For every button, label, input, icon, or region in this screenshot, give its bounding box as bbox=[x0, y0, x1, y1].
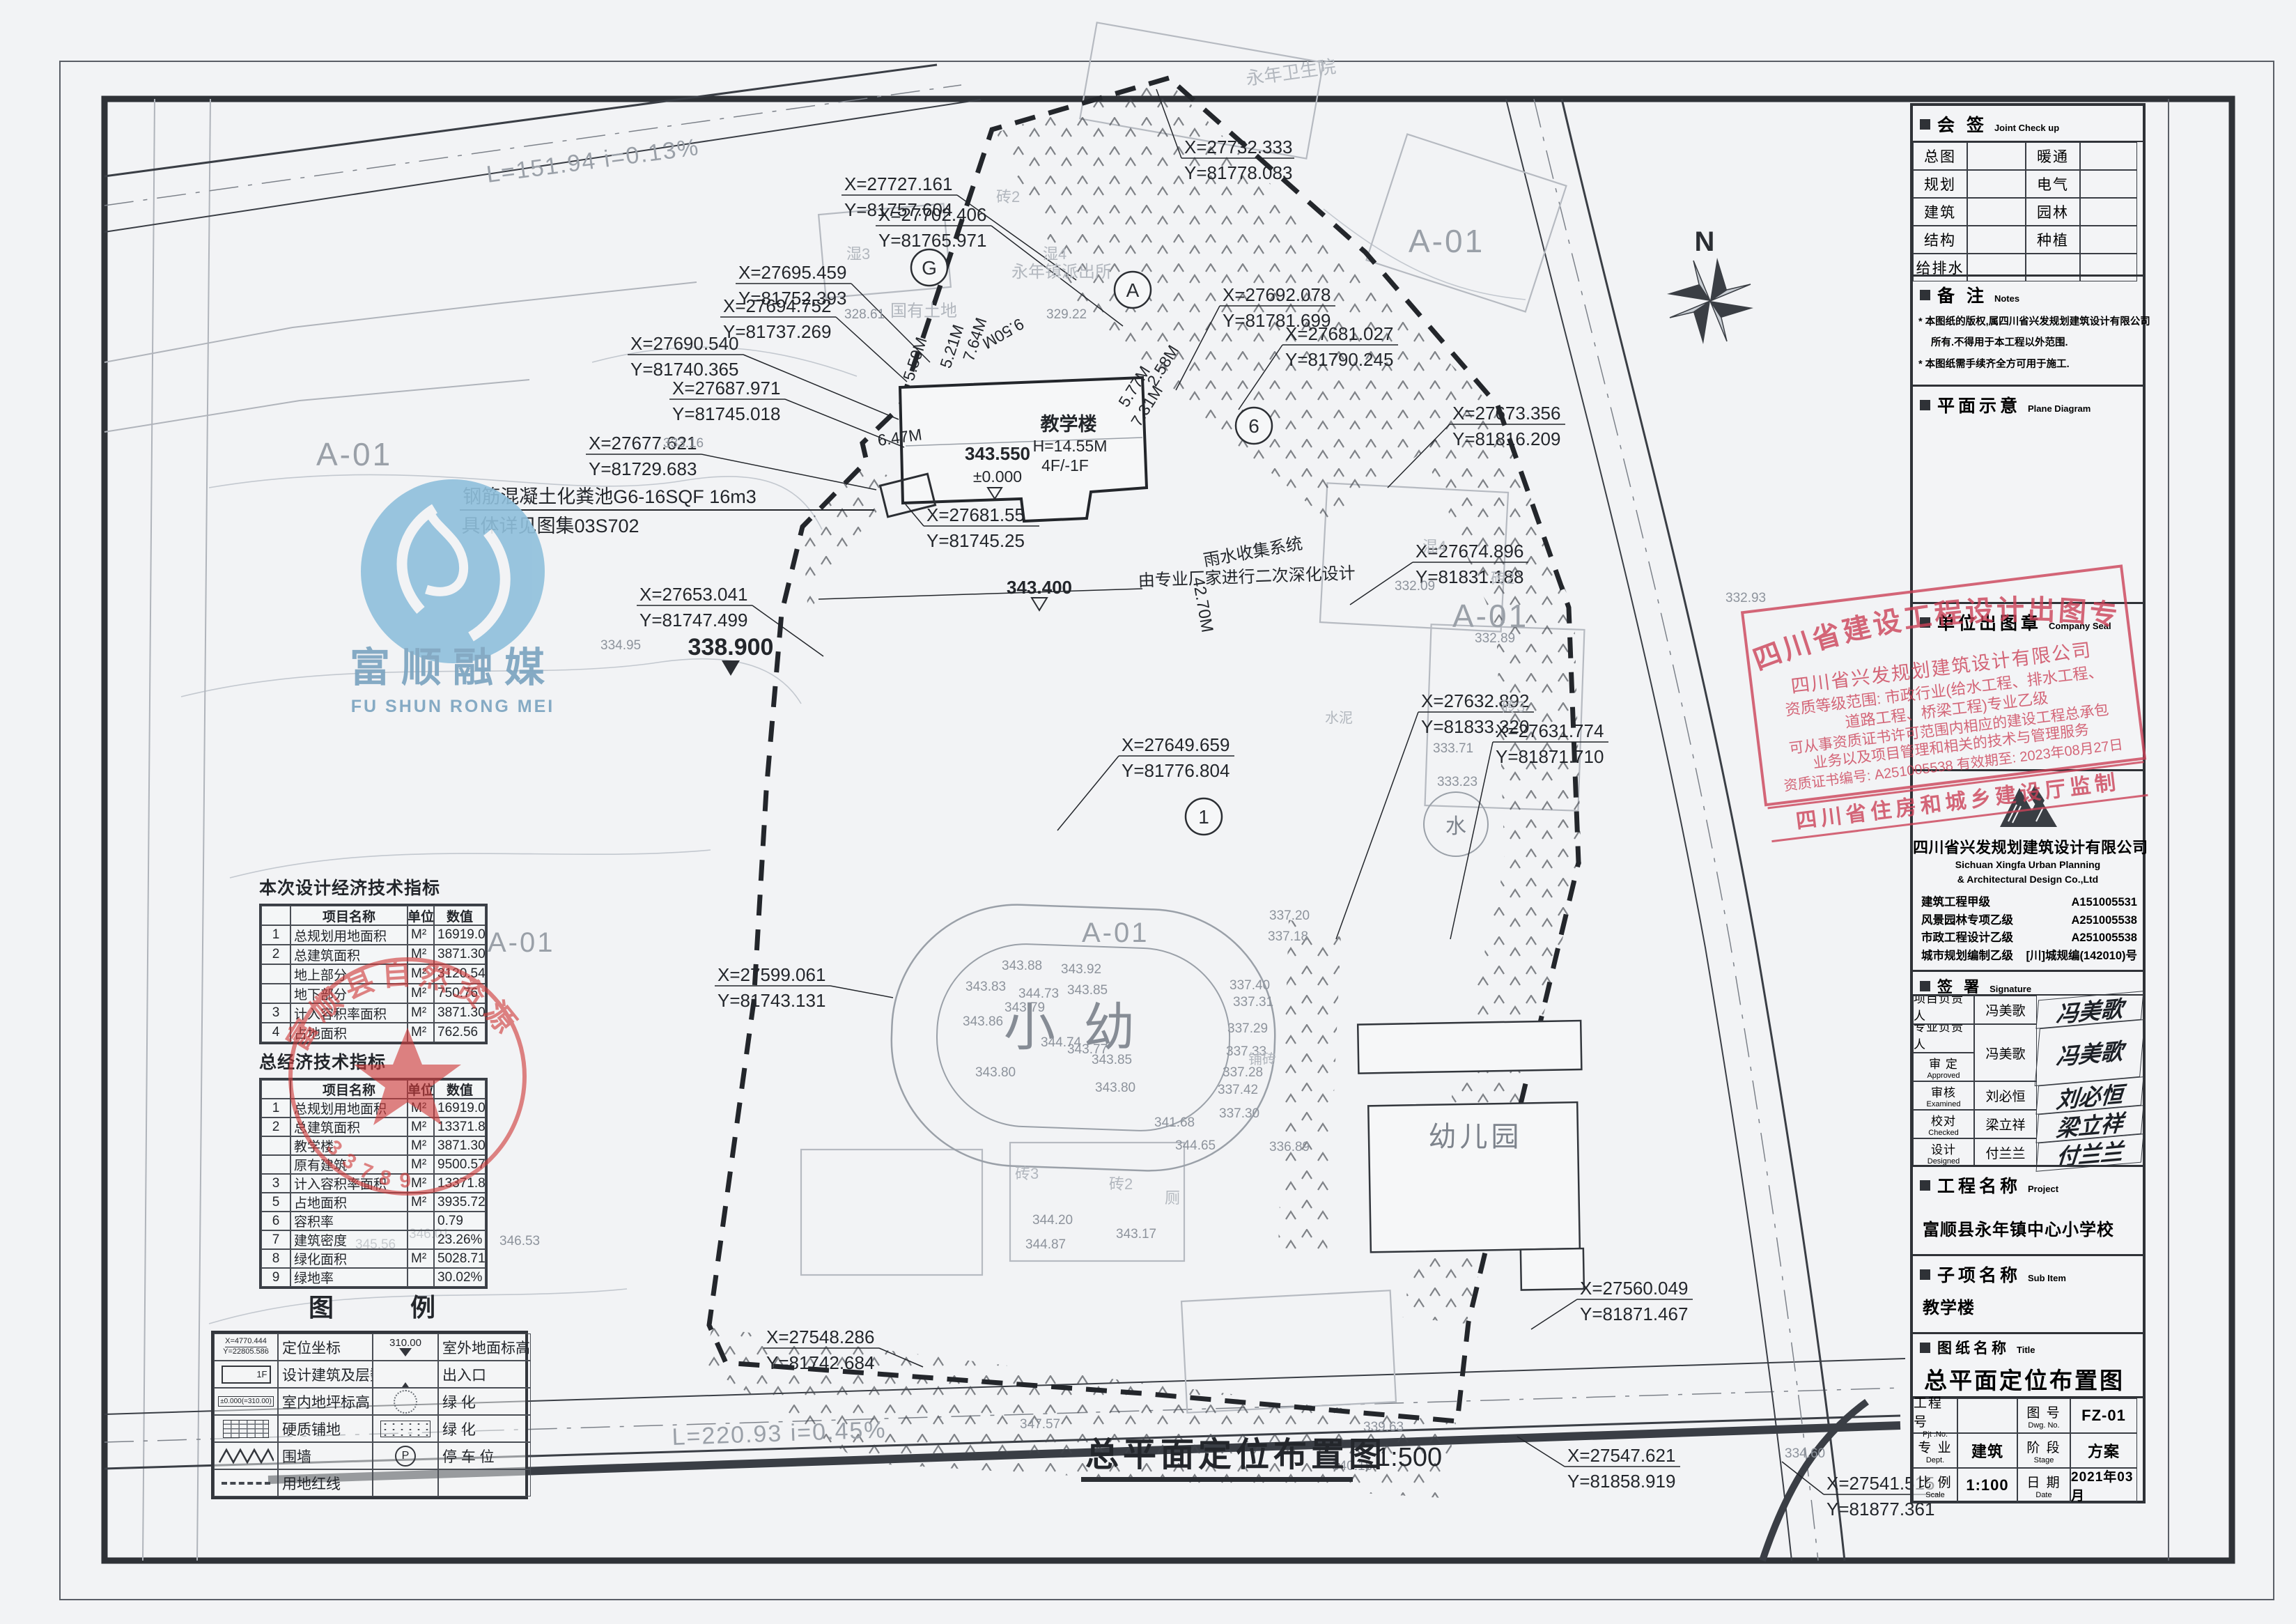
td: 7 bbox=[261, 1230, 290, 1249]
caption-scale: 1:500 bbox=[1376, 1443, 1442, 1472]
coordinate-callouts: X=27732.333 Y=81778.083 X=27727.161 Y=81… bbox=[586, 89, 1939, 1519]
td: 6 bbox=[261, 1212, 290, 1230]
td: 3871.30 bbox=[434, 1003, 486, 1023]
section-title: 单位出图章 bbox=[1937, 610, 2042, 635]
spot-elevation: 337.40 bbox=[1230, 978, 1270, 993]
section-title: 图纸名称 bbox=[1937, 1337, 2010, 1358]
coord-x: X=27681.55 bbox=[926, 504, 1025, 525]
coord-y: Y=81737.269 bbox=[723, 321, 831, 342]
td: 750.76 bbox=[434, 984, 486, 1003]
td: 3 bbox=[261, 1174, 290, 1193]
section-title-en: Project bbox=[2028, 1184, 2058, 1194]
sheet-name-section: 图纸名称 Title 总平面定位布置图 bbox=[1913, 1332, 2143, 1398]
td bbox=[408, 1268, 434, 1287]
coord-callout: X=27677.621 Y=81729.683 bbox=[586, 433, 876, 490]
coord-x: X=27727.161 bbox=[844, 173, 952, 194]
td: 9 bbox=[261, 1268, 290, 1287]
spot-elevation: 328.61 bbox=[844, 307, 885, 322]
role-label: 设计 bbox=[1931, 1140, 1956, 1157]
indoor-level-symbol: ±0.000(=310.00) bbox=[218, 1396, 274, 1407]
td: 占地面积 bbox=[290, 1023, 408, 1042]
coord-y: Y=81816.209 bbox=[1452, 428, 1560, 449]
building-height: H=14.55M bbox=[1033, 437, 1108, 455]
bubble-label: 6 bbox=[1248, 415, 1259, 437]
tree-icon bbox=[394, 1390, 417, 1414]
spot-elevation: 337.28 bbox=[1223, 1065, 1263, 1080]
td: 1 bbox=[261, 1099, 290, 1118]
td: 762.56 bbox=[434, 1023, 486, 1042]
field-label: 图 号 bbox=[2026, 1402, 2061, 1421]
spot-elevation: 337.20 bbox=[1269, 908, 1310, 923]
discipline-label: 总图 bbox=[1913, 142, 1967, 170]
role-label: 审核 bbox=[1931, 1083, 1956, 1100]
td: 总建筑面积 bbox=[290, 1118, 408, 1136]
section-title-en: Signature bbox=[1989, 984, 2031, 994]
td: 绿地率 bbox=[290, 1268, 408, 1287]
spot-elevation: 347.57 bbox=[1020, 1417, 1060, 1432]
company-logo bbox=[1993, 780, 2063, 830]
building-symbol: 1F bbox=[222, 1366, 271, 1384]
legend-label: 绿 化 bbox=[438, 1415, 531, 1442]
td: M² bbox=[408, 1023, 434, 1042]
td: M² bbox=[408, 1174, 434, 1193]
kindergarten-label: 幼儿园 bbox=[1429, 1122, 1523, 1152]
pond: 水 333.23 bbox=[1424, 775, 1488, 856]
cert-label: 城市规划编制乙级 bbox=[1921, 948, 2013, 966]
th: 数值 bbox=[434, 1080, 486, 1099]
td: 4 bbox=[261, 1023, 290, 1042]
spot-elevation: 337.29 bbox=[1227, 1021, 1268, 1036]
td bbox=[408, 1230, 434, 1249]
field-label: 比 例 bbox=[1918, 1472, 1952, 1491]
td: 地上部分 bbox=[290, 964, 408, 984]
design-indicator-table: 本次设计经济技术指标 项目名称 单位 数值 1总规划用地面积M²16919.03… bbox=[259, 874, 488, 1044]
table-title: 本次设计经济技术指标 bbox=[259, 874, 488, 899]
section-title-en: Plane Diagram bbox=[2028, 403, 2091, 414]
parcel-label: A-01 bbox=[1452, 598, 1528, 634]
bg-label: 铺砖 bbox=[1248, 1051, 1276, 1067]
td: 16919.03 bbox=[434, 1099, 486, 1118]
discipline-label: 规划 bbox=[1913, 170, 1967, 198]
th: 项目名称 bbox=[290, 1080, 408, 1099]
td: 占地面积 bbox=[290, 1193, 408, 1212]
spot-elevation: 337.18 bbox=[1268, 929, 1308, 944]
parcel-label: A-01 bbox=[1082, 918, 1149, 948]
td: 8 bbox=[261, 1249, 290, 1268]
legend-label: 定位坐标 bbox=[278, 1333, 373, 1361]
bg-label: 混4 bbox=[1422, 538, 1446, 555]
coord-x: X=27694.752 bbox=[723, 295, 831, 316]
section-title-en: Notes bbox=[1994, 293, 2019, 304]
signer-name: 冯美歌 bbox=[1974, 1024, 2037, 1081]
section-square-icon bbox=[1920, 981, 1930, 991]
td: 绿化面积 bbox=[290, 1249, 408, 1268]
spot-elevation: 343.88 bbox=[1002, 959, 1042, 973]
coord-x: X=27690.540 bbox=[630, 333, 738, 354]
legend-label: 用地红线 bbox=[278, 1469, 373, 1497]
th: 数值 bbox=[434, 906, 486, 925]
td: 2 bbox=[261, 945, 290, 964]
spot-elevation: 333.23 bbox=[1437, 775, 1477, 789]
bg-label: 砖2 bbox=[996, 188, 1020, 206]
coord-callout: X=27681.55 Y=81745.25 bbox=[906, 504, 1039, 551]
role-label: 专业负责人 bbox=[1914, 1024, 1973, 1052]
td bbox=[408, 1212, 434, 1230]
note-line: 所有.不得用于本工程以外范围. bbox=[1913, 332, 2143, 353]
th: 项目名称 bbox=[290, 906, 408, 925]
td: 总建筑面积 bbox=[290, 945, 408, 964]
coord-y: Y=81743.131 bbox=[717, 990, 825, 1011]
coord-y: Y=81747.499 bbox=[639, 610, 747, 631]
sub-item-name: 教学楼 bbox=[1913, 1287, 2143, 1318]
td: M² bbox=[408, 945, 434, 964]
north-compass-icon bbox=[1667, 258, 1753, 344]
section-title-en: Title bbox=[2017, 1345, 2035, 1355]
section-title: 平面示意 bbox=[1937, 392, 2021, 417]
section-title: 工程名称 bbox=[1937, 1173, 2021, 1198]
field-label: 工程号 bbox=[1914, 1393, 1957, 1430]
project-name: 富顺县永年镇中心小学校 bbox=[1913, 1198, 2143, 1240]
section-square-icon bbox=[1920, 290, 1930, 300]
sub-item-section: 子项名称 Sub Item 教学楼 bbox=[1913, 1254, 2143, 1334]
coord-y: Y=81742.684 bbox=[766, 1352, 874, 1373]
spot-elevation: 337.30 bbox=[1219, 1106, 1259, 1121]
bg-label: 砖2 bbox=[1109, 1175, 1133, 1193]
td: 16919.03 bbox=[434, 925, 486, 945]
spot-elevation: 343.83 bbox=[965, 980, 1006, 994]
td: 计入容积率面积 bbox=[290, 1174, 408, 1193]
coord-y: Y=81858.919 bbox=[1567, 1471, 1675, 1492]
bg-label: 湿3 bbox=[846, 245, 870, 263]
discipline-label: 暖通 bbox=[2026, 142, 2080, 170]
company-name: 四川省兴发规划建筑设计有限公司 bbox=[1913, 835, 2143, 858]
bg-label-police: 永年镇派出所 bbox=[1011, 263, 1112, 281]
section-square-icon bbox=[1920, 400, 1930, 410]
greenery-symbol bbox=[380, 1421, 430, 1437]
cert-label: 风景园林专项乙级 bbox=[1921, 912, 2013, 930]
sheet-title: 总平面定位布置图 bbox=[1913, 1358, 2143, 1395]
td: 2 bbox=[261, 1118, 290, 1136]
coord-y: Y=81871.467 bbox=[1580, 1304, 1688, 1324]
coord-y: Y=81740.365 bbox=[630, 359, 738, 380]
parcel-label: A-01 bbox=[316, 436, 392, 472]
bg-label: 砖3 bbox=[1015, 1165, 1039, 1182]
spot-elevation: 332.93 bbox=[1725, 591, 1766, 605]
td: 30.02% bbox=[434, 1268, 486, 1287]
section-title-en: Joint Check up bbox=[1994, 123, 2059, 133]
bg-label: 厕 bbox=[1165, 1189, 1180, 1207]
td: 3120.54 bbox=[434, 964, 486, 984]
td: M² bbox=[408, 1249, 434, 1268]
coord-callout: X=27547.621 Y=81858.919 bbox=[1517, 1437, 1680, 1492]
td bbox=[261, 984, 290, 1003]
building-floors: 4F/-1F bbox=[1041, 456, 1089, 474]
role-label: 项目负责人 bbox=[1914, 996, 1973, 1023]
elevation-symbol: 310.00 bbox=[389, 1338, 421, 1356]
legend-label: 室外地面标高 bbox=[438, 1333, 531, 1361]
coord-y: Y=81778.083 bbox=[1184, 162, 1292, 183]
bubble-label: G bbox=[922, 257, 937, 279]
spot-elevation: 333.71 bbox=[1433, 741, 1473, 756]
bg-label: 砖2 bbox=[1491, 570, 1514, 587]
coord-x: X=27681.027 bbox=[1285, 323, 1393, 344]
bg-label-state-land: 国有土地 bbox=[890, 302, 957, 320]
coord-x: X=27649.659 bbox=[1122, 734, 1230, 755]
spot-elevation: 341.68 bbox=[1154, 1115, 1195, 1130]
td: 5 bbox=[261, 1193, 290, 1212]
rainwater-note-1: 雨水收集系统 bbox=[1202, 534, 1304, 571]
td: 总规划用地面积 bbox=[290, 1099, 408, 1118]
td: M² bbox=[408, 1003, 434, 1023]
parking-symbol: P bbox=[395, 1446, 416, 1467]
legend-label: 停 车 位 bbox=[438, 1442, 531, 1469]
section-square-icon bbox=[1920, 119, 1930, 130]
spot-elevation: 343.85 bbox=[1067, 983, 1108, 998]
td: M² bbox=[408, 1155, 434, 1174]
spot-elevation: 332.09 bbox=[1395, 579, 1435, 594]
discipline-label: 电气 bbox=[2026, 170, 2080, 198]
spot-elevation: 343.80 bbox=[1095, 1081, 1135, 1095]
legend: 图 例 X=4770.444Y=22805.586 定位坐标 310.00 室外… bbox=[211, 1287, 528, 1499]
spot-elevation: 344.20 bbox=[1032, 1213, 1073, 1228]
td: 3935.72 bbox=[434, 1193, 486, 1212]
coord-y: Y=81729.683 bbox=[589, 458, 697, 479]
bg-label: 水泥 bbox=[1325, 710, 1353, 726]
septic-tank-note-2: 具体详见图集03S702 bbox=[461, 516, 639, 536]
dimension-label: 5.59M bbox=[899, 335, 930, 383]
stage-value: 方案 bbox=[2070, 1433, 2137, 1468]
coord-x: X=27702.406 bbox=[878, 204, 986, 225]
rainwater-note-2: 由专业厂家进行二次深化设计 bbox=[1138, 564, 1356, 591]
coord-symbol: X=4770.444Y=22805.586 bbox=[223, 1337, 269, 1357]
section-square-icon bbox=[1920, 1343, 1930, 1353]
cert-label: 市政工程设计乙级 bbox=[1921, 929, 2013, 948]
spot-elevation: 343.92 bbox=[1061, 962, 1101, 977]
pond-label: 水 bbox=[1445, 815, 1466, 838]
td: M² bbox=[408, 1099, 434, 1118]
td: 总规划用地面积 bbox=[290, 925, 408, 945]
table-title: 总经济技术指标 bbox=[259, 1049, 488, 1074]
legend-title: 图 bbox=[309, 1287, 334, 1324]
fence-symbol bbox=[218, 1447, 274, 1465]
project-number-value bbox=[1957, 1398, 2017, 1433]
discipline-label: 种植 bbox=[2026, 226, 2080, 254]
section-title: 子项名称 bbox=[1937, 1262, 2021, 1287]
septic-tank-note-1: 钢筋混凝土化粪池G6-16SQF 16m3 bbox=[463, 486, 757, 507]
td: 教学楼 bbox=[290, 1136, 408, 1155]
coord-x: X=27599.061 bbox=[717, 964, 825, 985]
level-zero: ±0.000 bbox=[973, 467, 1022, 486]
coord-x: X=27653.041 bbox=[639, 584, 747, 605]
coord-x: X=27631.774 bbox=[1496, 720, 1604, 741]
td: 建筑密度 bbox=[290, 1230, 408, 1249]
coord-x: X=27560.049 bbox=[1580, 1278, 1688, 1299]
coord-callout: X=27687.971 Y=81745.018 bbox=[669, 378, 904, 447]
td: 地下部分 bbox=[290, 984, 408, 1003]
td: 9500.57 bbox=[434, 1155, 486, 1174]
section-square-icon bbox=[1920, 1180, 1930, 1191]
spot-elevation: 329.22 bbox=[1046, 307, 1087, 322]
level-338900: 338.900 bbox=[688, 634, 774, 660]
plane-diagram-section: 平面示意 Plane Diagram bbox=[1913, 385, 2143, 604]
td: M² bbox=[408, 1193, 434, 1212]
drawing-number-value: FZ-01 bbox=[2070, 1398, 2137, 1433]
coord-x: X=27673.356 bbox=[1452, 403, 1560, 424]
signer-name: 冯美歌 bbox=[1974, 996, 2037, 1024]
td: M² bbox=[408, 964, 434, 984]
td: M² bbox=[408, 1136, 434, 1155]
cert-number: [川]城规编(142010)号 bbox=[2026, 948, 2137, 966]
cert-number: A251005538 bbox=[2071, 929, 2137, 948]
joint-check-section: 会 签 Joint Check up 总图暖通 规划电气 建筑园林 结构种植 给… bbox=[1913, 106, 2143, 274]
td: 13371.87 bbox=[434, 1174, 486, 1193]
company-name-en: & Architectural Design Co.,Ltd bbox=[1913, 872, 2143, 887]
legend-label: 绿 化 bbox=[438, 1388, 531, 1415]
td bbox=[261, 1136, 290, 1155]
spot-elevation: 344.87 bbox=[1025, 1237, 1066, 1252]
legend-label: 硬质铺地 bbox=[278, 1415, 373, 1442]
spot-elevation: 334.60 bbox=[1785, 1446, 1825, 1461]
coord-x: X=27732.333 bbox=[1184, 137, 1292, 157]
title-block: 会 签 Joint Check up 总图暖通 规划电气 建筑园林 结构种植 给… bbox=[1910, 103, 2146, 1503]
note-line: * 本图纸需手续齐全方可用于施工. bbox=[1913, 354, 2143, 375]
signer-name: 付兰兰 bbox=[1974, 1138, 2037, 1167]
td: 3 bbox=[261, 1003, 290, 1023]
td: 容积率 bbox=[290, 1212, 408, 1230]
td: 3871.30 bbox=[434, 1136, 486, 1155]
coord-y: Y=81765.971 bbox=[878, 230, 986, 251]
td: 1 bbox=[261, 925, 290, 945]
td: 23.26% bbox=[434, 1230, 486, 1249]
field-label: 日 期 bbox=[2026, 1472, 2061, 1491]
signer-name: 刘必恒 bbox=[1974, 1081, 2037, 1110]
legend-label: 围墙 bbox=[278, 1442, 373, 1469]
coord-x: X=27548.286 bbox=[766, 1327, 874, 1347]
site-plan-sheet: 水 333.23 N G A 6 1 X=27732.333 Y=81778.0… bbox=[0, 0, 2296, 1624]
td: 5028.71 bbox=[434, 1249, 486, 1268]
bubble-label: A bbox=[1126, 279, 1140, 301]
date-value: 2021年03月 bbox=[2070, 1468, 2137, 1503]
notes-section: 备 注 Notes * 本图纸的版权,属四川省兴发规划建筑设计有限公司 所有.不… bbox=[1913, 274, 2143, 387]
spot-elevation: 346.53 bbox=[499, 1234, 540, 1248]
bg-label: 砖3 bbox=[1501, 698, 1525, 716]
legend-label: 室内地坪标高 bbox=[278, 1388, 373, 1415]
role-label: 校对 bbox=[1931, 1111, 1956, 1129]
signature-section: 签 署 Signature 项目负责人Item.Prin 冯美歌 冯美歌 专业负… bbox=[1913, 970, 2143, 1167]
caption-text: 总平面定位布置图 bbox=[1085, 1437, 1386, 1474]
section-square-icon bbox=[1920, 1269, 1930, 1280]
parcel-label: A-01 bbox=[488, 927, 555, 958]
spot-elevation: 336.89 bbox=[1269, 1140, 1310, 1154]
discipline-label: 建筑 bbox=[1913, 198, 1967, 226]
td: M² bbox=[408, 925, 434, 945]
td: 原有建筑 bbox=[290, 1155, 408, 1174]
playground-label: 小 幼 bbox=[1004, 998, 1142, 1056]
scale-value: 1:100 bbox=[1957, 1468, 2017, 1503]
department-value: 建筑 bbox=[1957, 1433, 2017, 1468]
spot-elevation: 344.65 bbox=[1175, 1138, 1216, 1153]
spot-elevation: 337.31 bbox=[1233, 995, 1273, 1010]
coord-x: X=27692.078 bbox=[1223, 284, 1331, 305]
signature-script: 冯美歌 bbox=[2035, 1019, 2146, 1086]
th bbox=[261, 1080, 290, 1099]
section-title-en: Company Seal bbox=[2049, 621, 2111, 631]
coord-y: Y=81871.710 bbox=[1496, 746, 1604, 767]
td: M² bbox=[408, 1118, 434, 1136]
td: 计入容积率面积 bbox=[290, 1003, 408, 1023]
section-square-icon bbox=[1920, 617, 1930, 628]
td bbox=[261, 964, 290, 984]
section-title-en: Sub Item bbox=[2028, 1273, 2066, 1283]
coord-y: Y=81745.25 bbox=[926, 530, 1025, 551]
entrance-arrow-icon bbox=[396, 1366, 415, 1383]
paving-symbol bbox=[223, 1420, 269, 1438]
level-343400: 343.400 bbox=[1007, 577, 1072, 598]
company-name-en: Sichuan Xingfa Urban Planning bbox=[1913, 858, 2143, 872]
td: M² bbox=[408, 984, 434, 1003]
th: 单位 bbox=[408, 1080, 434, 1099]
section-title: 备 注 bbox=[1937, 282, 1987, 307]
spot-elevation: 337.42 bbox=[1218, 1083, 1258, 1097]
legend-label: 出入口 bbox=[438, 1361, 531, 1388]
legend-label: 设计建筑及层数 bbox=[278, 1361, 373, 1388]
spot-elevation: 343.86 bbox=[963, 1014, 1003, 1029]
td bbox=[261, 1155, 290, 1174]
number-grid-section: 工程号Pjt .No. 图 号Dwg. No. FZ-01 专 业Dept. 建… bbox=[1913, 1396, 2143, 1503]
th: 单位 bbox=[408, 906, 434, 925]
bg-label: 湿4 bbox=[1043, 245, 1066, 263]
field-label: 专 业 bbox=[1918, 1437, 1952, 1456]
spot-elevation: 334.95 bbox=[600, 638, 641, 653]
project-section: 工程名称 Project 富顺县永年镇中心小学校 bbox=[1913, 1165, 2143, 1256]
section-title: 会 签 bbox=[1937, 111, 1987, 137]
th bbox=[261, 906, 290, 925]
building-name: 教学楼 bbox=[1041, 413, 1097, 435]
spot-elevation: 333.16 bbox=[663, 436, 704, 451]
discipline-label: 园林 bbox=[2026, 198, 2080, 226]
cert-label: 建筑工程甲级 bbox=[1921, 894, 1990, 912]
bubble-label: 1 bbox=[1198, 806, 1209, 828]
cert-number: A151005531 bbox=[2071, 894, 2137, 912]
coord-x: X=27687.971 bbox=[672, 378, 780, 399]
level-343550: 343.550 bbox=[965, 443, 1030, 464]
cert-number: A251005538 bbox=[2071, 912, 2137, 930]
td: 0.79 bbox=[434, 1212, 486, 1230]
td: 3871.30 bbox=[434, 945, 486, 964]
field-label: 阶 段 bbox=[2026, 1437, 2061, 1456]
coord-callout: X=27599.061 Y=81743.131 bbox=[715, 964, 893, 1011]
role-label: 审 定 bbox=[1929, 1054, 1958, 1072]
td: 13371.87 bbox=[434, 1118, 486, 1136]
road-label-top: L=151.94 i=0.13% bbox=[485, 134, 701, 188]
north-label: N bbox=[1695, 226, 1715, 257]
total-indicator-table: 总经济技术指标 项目名称 单位 数值 1总规划用地面积M²16919.03 2总… bbox=[259, 1049, 488, 1289]
company-seal-section: 单位出图章 Company Seal bbox=[1913, 602, 2143, 771]
discipline-label: 结构 bbox=[1913, 226, 1967, 254]
company-section: 四川省兴发规划建筑设计有限公司 Sichuan Xingfa Urban Pla… bbox=[1913, 769, 2143, 972]
coord-x: X=27695.459 bbox=[738, 262, 846, 283]
parcel-label: A-01 bbox=[1409, 223, 1484, 259]
spot-elevation: 343.17 bbox=[1116, 1227, 1156, 1242]
coord-y: Y=81790.245 bbox=[1285, 349, 1393, 370]
legend-title: 例 bbox=[410, 1287, 435, 1324]
coord-y: Y=81776.804 bbox=[1122, 760, 1230, 781]
coord-x: X=27547.621 bbox=[1567, 1445, 1675, 1466]
coord-y: Y=81745.018 bbox=[672, 403, 780, 424]
red-line-symbol bbox=[222, 1482, 270, 1485]
note-line: * 本图纸的版权,属四川省兴发规划建筑设计有限公司 bbox=[1913, 307, 2143, 332]
signer-name: 梁立祥 bbox=[1974, 1110, 2037, 1138]
